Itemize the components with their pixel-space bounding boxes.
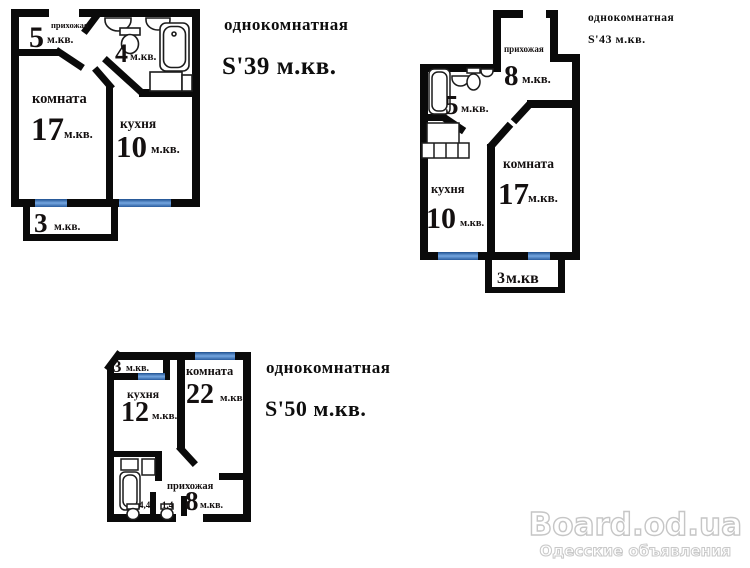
living-value: 22 xyxy=(186,379,214,410)
balcony-unit: м.кв xyxy=(506,270,539,287)
watermark-site-name: Board.od.ua xyxy=(529,510,742,541)
hallway-value: 8 xyxy=(504,60,519,92)
plan3-total-area: S'50 м.кв. xyxy=(265,396,366,422)
living-value: 17 xyxy=(498,176,529,211)
watermark-tagline: Одесские объявления xyxy=(529,542,742,560)
toilet-tank-icon xyxy=(467,68,480,73)
living-label: комната xyxy=(503,156,554,171)
hallway-label: прихожая xyxy=(51,20,89,30)
window xyxy=(119,199,171,207)
plan1-type-title: однокомнатная xyxy=(224,15,348,35)
plan2-type-title: однокомнатная xyxy=(588,12,674,24)
hallway-value: 8 xyxy=(185,486,199,516)
classified-floorplan-image: прихожая 5 м.кв. 4 м.кв. комната 17 м.кв… xyxy=(0,0,750,568)
hallway-label: прихожая xyxy=(504,44,544,54)
toilet-bowl-icon xyxy=(161,509,173,520)
wc-area-1: 4,4 xyxy=(139,500,151,510)
bathroom-unit: м.кв. xyxy=(130,51,157,63)
window xyxy=(195,352,235,360)
balcony-unit: м.кв. xyxy=(54,221,81,233)
cabinet-icon xyxy=(142,459,155,475)
floorplan-39: прихожая 5 м.кв. 4 м.кв. комната 17 м.кв… xyxy=(5,3,210,250)
kitchen-value: 10 xyxy=(426,202,456,235)
kitchen-value: 12 xyxy=(121,397,149,428)
plan3-type-title: однокомнатная xyxy=(266,358,390,378)
balcony-value: 3 xyxy=(113,357,122,376)
toilet-bowl-icon xyxy=(127,509,139,520)
kitchen-value: 10 xyxy=(116,129,147,164)
bathroom-value: 5 xyxy=(445,90,459,120)
window xyxy=(438,252,478,260)
plan2-total-area: S'43 м.кв. xyxy=(588,32,646,47)
living-unit: м.кв. xyxy=(64,127,93,141)
living-unit: м.кв. xyxy=(528,190,558,205)
kitchen-unit: м.кв. xyxy=(151,142,180,156)
balcony-unit: м.кв. xyxy=(126,363,149,374)
window xyxy=(528,252,550,260)
hallway-unit: м.кв. xyxy=(522,72,551,86)
hallway-value: 5 xyxy=(29,21,44,54)
bathtub-inner xyxy=(123,475,137,507)
cabinet-icon xyxy=(182,75,192,91)
plan3-bathroom-fixtures xyxy=(120,459,173,520)
hallway-unit: м.кв. xyxy=(47,34,74,46)
washer-icon xyxy=(150,72,182,91)
living-label: комната xyxy=(186,364,234,378)
living-unit: м.кв. xyxy=(220,392,246,404)
wc-area-2: 1,4 xyxy=(162,500,174,510)
drain xyxy=(172,32,176,36)
watermark: Board.od.ua Одесские объявления xyxy=(529,510,742,560)
window xyxy=(138,373,165,380)
kitchen-unit: м.кв. xyxy=(460,218,484,229)
floorplan-43: прихожая 8 м.кв. 5 м.кв. кухня 10 м.кв. … xyxy=(415,6,587,303)
kitchen-label: кухня xyxy=(431,182,465,196)
living-value: 17 xyxy=(31,112,64,148)
bathroom-unit: м.кв. xyxy=(461,101,489,115)
window xyxy=(35,199,67,207)
sink-icon xyxy=(481,69,493,77)
floorplan-50: 3 м.кв. кухня 12 м.кв. комната 22 м.кв. … xyxy=(97,348,269,531)
toilet-bowl-icon xyxy=(467,74,480,90)
living-label: комната xyxy=(32,91,88,107)
plan1-total-area: S'39 м.кв. xyxy=(222,53,337,81)
washer-icon xyxy=(121,459,138,470)
balcony-value: 3 xyxy=(497,270,505,287)
hallway-unit: м.кв. xyxy=(200,500,223,511)
balcony-value: 3 xyxy=(34,208,48,238)
bathroom-value: 4 xyxy=(115,39,128,68)
kitchen-unit: м.кв. xyxy=(152,410,178,422)
